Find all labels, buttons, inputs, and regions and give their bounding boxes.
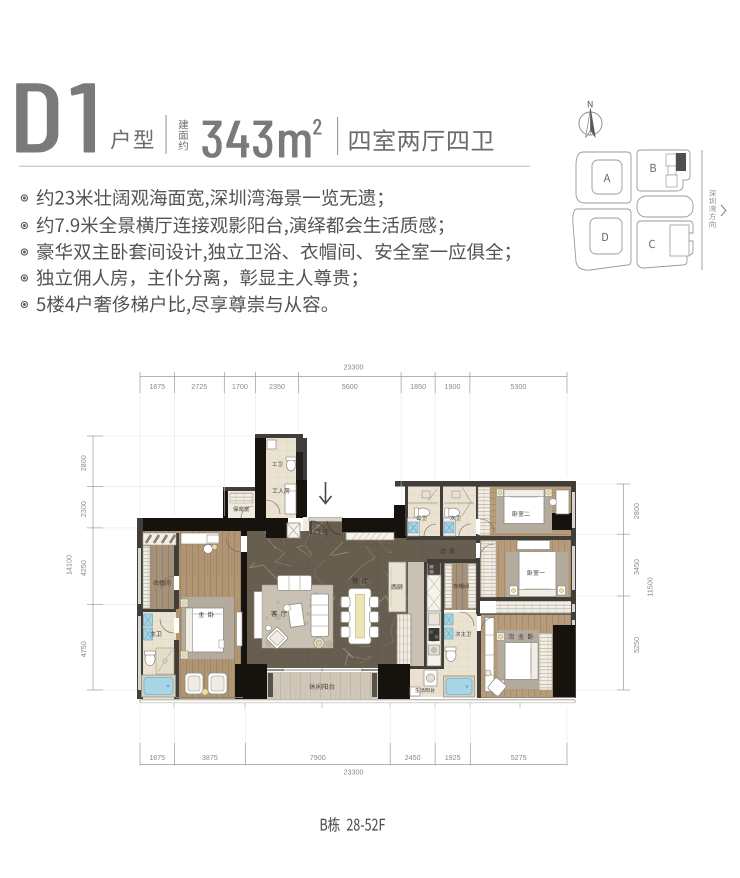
svg-text:23300: 23300 [344,363,364,372]
svg-text:14100: 14100 [65,555,74,575]
svg-text:2800: 2800 [632,503,641,519]
svg-text:2725: 2725 [191,382,207,391]
svg-text:5250: 5250 [632,637,641,653]
svg-text:2300: 2300 [79,501,88,517]
svg-text:11500: 11500 [646,577,655,596]
svg-text:2350: 2350 [269,382,285,391]
svg-text:5275: 5275 [511,753,527,762]
svg-text:23300: 23300 [344,768,364,777]
svg-text:1850: 1850 [410,382,426,391]
svg-text:3875: 3875 [202,753,218,762]
svg-text:4750: 4750 [79,641,88,657]
svg-text:7900: 7900 [310,753,326,762]
svg-text:1925: 1925 [445,753,461,762]
svg-text:1900: 1900 [445,382,461,391]
svg-text:1875: 1875 [149,382,165,391]
svg-text:3450: 3450 [632,559,641,575]
svg-text:4250: 4250 [79,560,88,576]
svg-text:1875: 1875 [149,753,165,762]
svg-text:5600: 5600 [342,382,358,391]
svg-text:2450: 2450 [405,753,421,762]
svg-text:2800: 2800 [79,455,88,471]
svg-text:1700: 1700 [232,382,248,391]
svg-text:5300: 5300 [510,382,526,391]
